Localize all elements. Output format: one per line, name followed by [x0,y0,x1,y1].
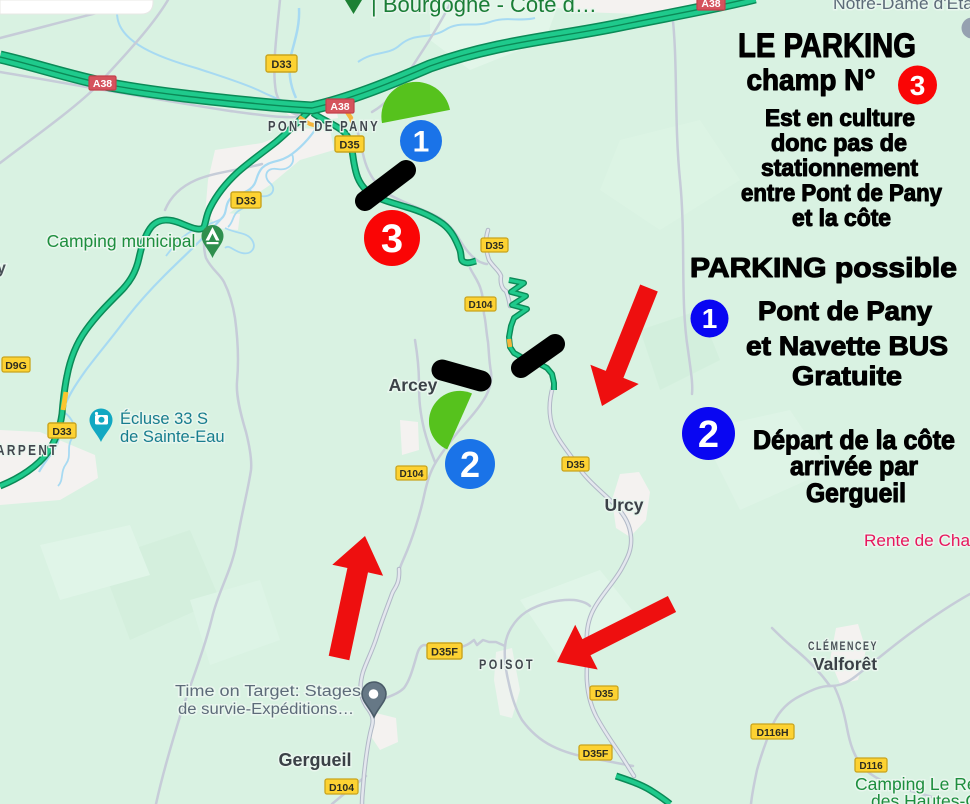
svg-text:et Navette BUS: et Navette BUS [746,331,948,361]
svg-text:D104: D104 [400,469,424,480]
svg-text:1: 1 [702,303,718,334]
svg-text:2: 2 [698,414,719,456]
svg-text:Arcey: Arcey [389,375,438,395]
svg-text:D104: D104 [469,300,493,311]
svg-text:POISOT: POISOT [479,657,535,672]
svg-text:y: y [0,260,6,277]
svg-text:Gergueil: Gergueil [278,750,351,770]
svg-text:Rente de Cha: Rente de Cha [864,532,970,550]
svg-text:Notre-Dame d'Éta: Notre-Dame d'Éta [833,0,970,13]
svg-text:Valforêt: Valforêt [813,654,877,674]
svg-text:Est en culture: Est en culture [765,105,915,132]
svg-text:PARKING possible: PARKING possible [690,252,957,283]
svg-text:D9G: D9G [5,360,27,372]
svg-text:Écluse 33 S: Écluse 33 S [120,409,208,428]
svg-text:D35F: D35F [583,748,609,760]
svg-text:arrivée par: arrivée par [790,451,918,481]
svg-text:de Sainte-Eau: de Sainte-Eau [120,428,225,446]
svg-text:D35: D35 [566,460,585,471]
svg-text:LE PARKING: LE PARKING [738,27,916,65]
svg-text:A38: A38 [93,78,112,90]
svg-text:Urcy: Urcy [605,495,644,515]
svg-text:1: 1 [413,126,430,159]
svg-text:A38: A38 [330,101,349,113]
svg-text:D33: D33 [236,196,256,208]
svg-text:| Bourgogne - Côte d…: | Bourgogne - Côte d… [371,0,597,17]
svg-text:CLÉMENCEY: CLÉMENCEY [808,640,878,653]
svg-text:PONT DE PANY: PONT DE PANY [268,119,380,135]
svg-text:3: 3 [381,217,403,261]
svg-text:3: 3 [910,70,926,101]
svg-text:stationnement: stationnement [761,155,918,182]
svg-text:de survie-Expéditions…: de survie-Expéditions… [178,701,354,718]
svg-text:D35: D35 [595,689,614,700]
svg-text:champ N°: champ N° [747,64,876,97]
svg-text:D35: D35 [339,140,359,152]
svg-text:entre Pont de Pany: entre Pont de Pany [741,180,943,207]
svg-text:Gergueil: Gergueil [806,478,906,508]
svg-text:D104: D104 [329,782,354,794]
svg-text:et la côte: et la côte [792,205,891,232]
svg-text:Pont de Pany: Pont de Pany [758,296,932,326]
svg-text:ARPENT: ARPENT [0,443,59,459]
svg-text:A38: A38 [701,0,720,10]
svg-text:D33: D33 [271,59,291,71]
svg-text:D116H: D116H [756,727,788,739]
svg-text:D33: D33 [52,426,71,438]
svg-text:des Hautes-C: des Hautes-C [871,791,970,804]
svg-text:D35F: D35F [431,647,458,659]
svg-text:2: 2 [460,444,480,485]
svg-text:Camping municipal: Camping municipal [47,231,196,251]
svg-text:donc pas de: donc pas de [771,130,907,157]
svg-text:D35: D35 [485,241,504,252]
svg-text:Gratuite: Gratuite [792,361,902,391]
svg-text:D116: D116 [859,761,883,772]
svg-text:Time on Target: Stages: Time on Target: Stages [175,683,361,700]
